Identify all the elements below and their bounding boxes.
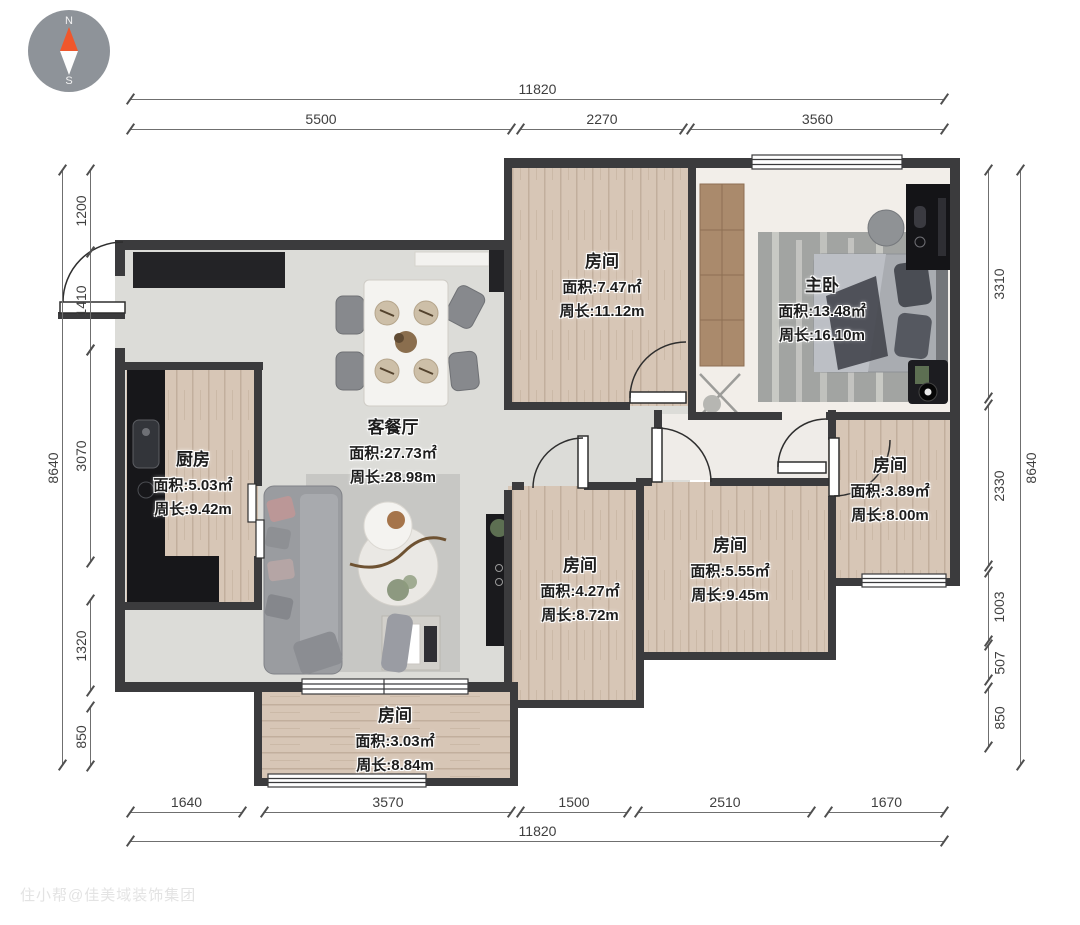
dim-right-segment-4: 507	[988, 645, 989, 680]
nightstand	[908, 360, 948, 404]
dim-bottom-segment-4: 2510	[638, 795, 812, 813]
dim-left-segment-5: 850	[90, 707, 91, 766]
dim-bottom-segment-5: 1670	[828, 795, 945, 813]
room-label-master: 主卧 面积:13.48㎡ 周长:16.10m	[778, 274, 866, 348]
dim-right-segment-1: 3310	[988, 170, 989, 398]
compass-north-needle-icon	[60, 27, 78, 51]
master-window	[752, 155, 902, 169]
dim-top-segment-2: 2270	[520, 112, 684, 130]
dim-bottom-total: 11820	[130, 824, 945, 842]
dim-left-segment-1: 1200	[90, 170, 91, 252]
dim-top-total: 11820	[130, 82, 945, 100]
dim-right-total: 8640	[1020, 170, 1021, 765]
dim-bottom-segment-1: 1640	[130, 795, 243, 813]
room-label-living: 客餐厅 面积:27.73㎡ 周长:28.98m	[349, 416, 437, 490]
dim-right-segment-5: 850	[988, 688, 989, 747]
room-label-room-center: 房间 面积:4.27㎡ 周长:8.72m	[540, 554, 619, 628]
dim-top-segment-1: 5500	[130, 112, 512, 130]
balcony-slider-window	[302, 679, 468, 694]
room-label-balcony: 房间 面积:3.03㎡ 周长:8.84m	[355, 704, 434, 778]
shoe-cabinet	[133, 252, 285, 288]
console-table	[415, 252, 489, 266]
room-label-bedroom-top: 房间 面积:7.47㎡ 周长:11.12m	[559, 250, 644, 324]
compass-south-label: S	[65, 75, 72, 87]
room-label-room-right: 房间 面积:3.89㎡ 周长:8.00m	[850, 454, 929, 528]
dim-bottom-segment-2: 3570	[264, 795, 512, 813]
compass: N S	[28, 10, 110, 92]
dim-right-segment-2: 2330	[988, 405, 989, 566]
watermark: 住小帮@佳美域装饰集团	[20, 884, 196, 905]
dim-left-segment-4: 1320	[90, 600, 91, 691]
sofa	[264, 486, 344, 676]
wardrobe	[700, 184, 744, 366]
magazine-bench	[380, 612, 440, 673]
dim-left-segment-3: 3070	[90, 350, 91, 562]
compass-north-label: N	[65, 15, 73, 27]
floorplan-page: 客餐厅 面积:27.73㎡ 周长:28.98m 厨房 面积:5.03㎡ 周长:9…	[0, 0, 1080, 925]
room-label-room-center-right: 房间 面积:5.55㎡ 周长:9.45m	[690, 534, 769, 608]
dim-left-total: 8640	[62, 170, 63, 765]
tall-cabinet	[489, 250, 504, 292]
compass-south-needle-icon	[60, 51, 78, 75]
dim-left-segment-2: 1410	[90, 252, 91, 350]
dim-bottom-segment-3: 1500	[520, 795, 628, 813]
room-label-kitchen: 厨房 面积:5.03㎡ 周长:9.42m	[153, 448, 232, 522]
dim-right-segment-3: 1003	[988, 572, 989, 641]
dim-top-segment-3: 3560	[690, 112, 945, 130]
room-right-window	[862, 574, 946, 587]
